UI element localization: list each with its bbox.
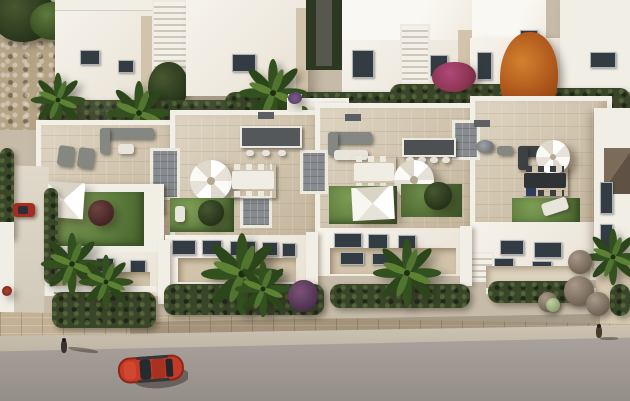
window bbox=[352, 50, 374, 78]
door-mat bbox=[497, 146, 513, 155]
window bbox=[340, 252, 364, 265]
stair-bulkhead bbox=[300, 150, 328, 194]
window bbox=[282, 243, 296, 257]
red-car bbox=[116, 350, 188, 392]
sun-lounger bbox=[57, 145, 76, 167]
outdoor-sofa bbox=[100, 128, 110, 154]
dining-chairs bbox=[234, 164, 272, 170]
aerial-render-scene bbox=[0, 0, 630, 401]
light-green-shrub-ball bbox=[546, 298, 560, 312]
bar-stool bbox=[246, 150, 254, 156]
roof-vent bbox=[258, 112, 274, 119]
roof-vent bbox=[474, 120, 490, 127]
window bbox=[534, 242, 562, 258]
dining-set bbox=[352, 156, 396, 190]
window bbox=[334, 233, 362, 248]
bar-stool bbox=[442, 157, 450, 163]
parked-car-glass bbox=[18, 206, 28, 214]
bar-stool bbox=[262, 150, 270, 156]
dining-chairs bbox=[234, 191, 272, 197]
mauve-shrub-ball bbox=[568, 250, 592, 274]
garden-bench bbox=[175, 206, 185, 222]
sun-lounger bbox=[77, 147, 96, 169]
background-building bbox=[560, 0, 630, 92]
roof-vent bbox=[345, 114, 361, 121]
dining-table bbox=[232, 171, 274, 189]
pedestrian-shadow bbox=[600, 337, 618, 340]
corridor-path bbox=[316, 0, 332, 66]
kitchen-island bbox=[402, 138, 456, 157]
window bbox=[172, 240, 196, 255]
dining-table bbox=[354, 163, 394, 181]
divider-wall bbox=[460, 226, 472, 286]
palm-tree bbox=[234, 260, 292, 318]
front-hedge bbox=[610, 284, 630, 316]
window bbox=[500, 240, 524, 255]
storage-box bbox=[526, 188, 536, 196]
white-parasol bbox=[190, 160, 232, 202]
roof-parapet bbox=[55, 0, 155, 11]
stair-bulkhead bbox=[240, 196, 272, 228]
bbq-counter bbox=[240, 126, 302, 148]
pedestrian-head bbox=[597, 324, 601, 328]
pedestrian-head bbox=[62, 338, 66, 342]
mauve-shrub-ball bbox=[586, 292, 610, 316]
window bbox=[590, 52, 616, 68]
satellite-dish bbox=[476, 140, 494, 153]
palm-tree bbox=[78, 254, 134, 310]
coffee-table bbox=[118, 144, 134, 154]
window bbox=[600, 182, 613, 214]
bar-stool bbox=[278, 150, 286, 156]
palm-tree bbox=[372, 238, 442, 308]
window bbox=[118, 60, 134, 73]
bar-stool bbox=[430, 157, 438, 163]
dining-table bbox=[524, 173, 566, 188]
dining-set bbox=[230, 164, 276, 198]
dining-chairs bbox=[526, 166, 564, 172]
shade-sail bbox=[351, 186, 395, 221]
dining-chairs bbox=[356, 156, 392, 162]
window bbox=[80, 50, 100, 65]
window bbox=[477, 52, 492, 80]
